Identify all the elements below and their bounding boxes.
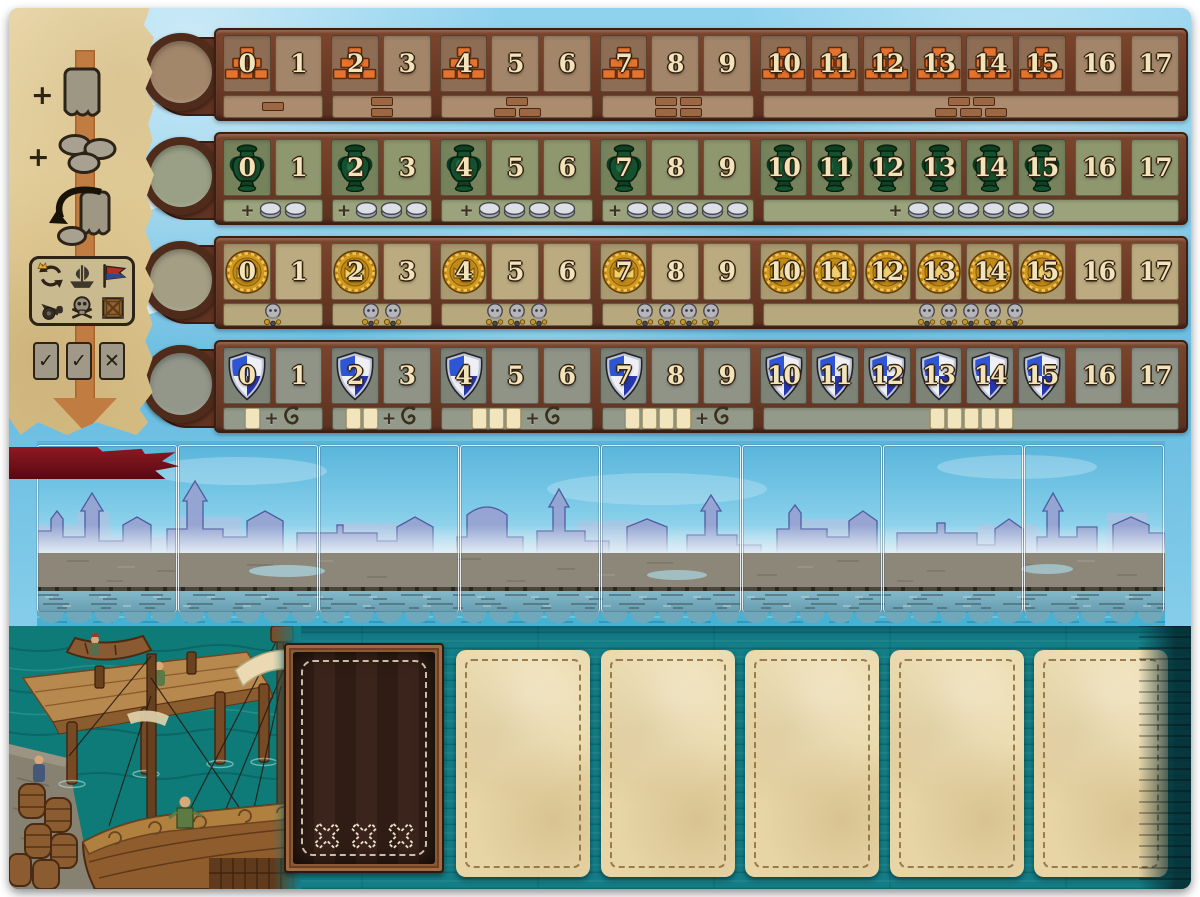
medal-track-cell-13[interactable]: 13 [915,243,963,300]
skull-loot-icon [657,303,677,326]
card-slot-dashed-outline [899,659,1015,868]
brick-reward-group [494,97,541,117]
coin-icon [355,202,378,219]
legend-return-card-for-coin [47,184,125,256]
shield-track-cell-15[interactable]: 15 [1018,347,1066,404]
discard-pile-slot[interactable] [284,643,444,873]
cell-number: 5 [491,360,539,389]
card-slot-dashed-outline [610,659,726,868]
cell-number: 13 [915,256,963,285]
amphora-track-cell-14[interactable]: 14 [966,139,1014,196]
brick-icon [655,97,677,106]
skull-loot-icon [679,303,699,326]
water-edge-shading [1139,626,1191,889]
skull-reward-group [263,303,283,326]
cell-number: 17 [1131,48,1179,77]
cell-number: 6 [543,152,591,181]
cell-number: 1 [275,152,323,181]
medal-track-cell-6[interactable]: 6 [543,243,591,300]
brick-track-cell-5[interactable]: 5 [491,35,539,92]
amphora-track-cell-3[interactable]: 3 [383,139,431,196]
cell-number: 9 [703,256,751,285]
medal-track-cell-4[interactable]: 4 [440,243,488,300]
harbor-card-slot-3[interactable] [319,445,459,612]
shield-track-cell-14[interactable]: 14 [966,347,1014,404]
amphora-track-cell-2[interactable]: 2 [331,139,379,196]
brick-track-cell-0[interactable]: 0 [223,35,271,92]
cell-number: 13 [915,360,963,389]
plus-sign: + [27,142,50,173]
shield-track-frame: 01234567891011121314151617++++ [214,340,1188,433]
coins-icon [55,132,121,182]
cell-number: 14 [966,48,1014,77]
cell-number: 7 [600,48,648,77]
harbor-ship-illustration [9,626,301,889]
brick-icon [935,108,957,117]
amphora-track-reward-5: + [763,199,1179,222]
plus-sign: + [382,409,396,429]
amphora-track-cell-0[interactable]: 0 [223,139,271,196]
amphora-track-cell-7[interactable]: 7 [600,139,648,196]
card-slot-dashed-outline [754,659,870,868]
brick-reward-group [371,97,393,117]
skull-loot-icon [961,303,981,326]
display-card-slot-1[interactable] [456,650,590,877]
amphora-track-cell-11[interactable]: 11 [811,139,859,196]
cell-number: 10 [760,152,808,181]
amphora-track: 01234567891011121314151617+++++ [214,132,1188,225]
card-reward-group [346,408,378,429]
cell-number: 13 [915,48,963,77]
medal-track-reward-2 [332,303,432,326]
harbor-card-slot-6[interactable] [742,445,882,612]
brick-track-reward-1 [223,95,323,118]
cell-number: 4 [440,152,488,181]
card-icon [625,408,640,429]
medal-track-cell-0[interactable]: 0 [223,243,271,300]
plus-sign: + [608,201,622,221]
cell-number: 10 [760,48,808,77]
brick-icon [506,97,528,106]
amphora-track-reward-2: + [332,199,432,222]
medal-track: 01234567891011121314151617 [214,236,1188,329]
shield-track-cell-9[interactable]: 9 [703,347,751,404]
shield-track-marker-circle[interactable] [142,345,220,423]
shield-track-cell-4[interactable]: 4 [440,347,488,404]
stitched-x-icon [313,822,341,850]
shield-track-cell-13[interactable]: 13 [915,347,963,404]
skull-loot-icon [263,303,283,326]
cell-number: 11 [811,48,859,77]
cell-number: 1 [275,48,323,77]
cell-number: 7 [600,152,648,181]
harbor-card-row [37,441,1165,626]
coin-icon [932,202,955,219]
medal-track-marker-circle[interactable] [142,241,220,319]
amphora-track-cell-4[interactable]: 4 [440,139,488,196]
cell-number: 11 [811,152,859,181]
cell-number: 0 [223,360,271,389]
shield-track-reward-3: + [441,407,593,430]
amphora-track-cell-9[interactable]: 9 [703,139,751,196]
brick-icon [519,108,541,117]
cell-number: 8 [651,360,699,389]
brick-track-cell-7[interactable]: 7 [600,35,648,92]
brick-track-cell-17[interactable]: 17 [1131,35,1179,92]
cell-number: 6 [543,256,591,285]
medal-track-cell-10[interactable]: 10 [760,243,808,300]
card-display-area [9,626,1191,889]
shield-track-cell-1[interactable]: 1 [275,347,323,404]
harbor-card-slot-5[interactable] [601,445,741,612]
plus-sign: + [695,409,709,429]
medal-track-cell-15[interactable]: 15 [1018,243,1066,300]
brick-track-cell-9[interactable]: 9 [703,35,751,92]
card-icon [964,408,979,429]
skull-reward-group [361,303,403,326]
discard-pile-inner [293,652,435,864]
card-icon [489,408,504,429]
medal-track-cell-1[interactable]: 1 [275,243,323,300]
skull-loot-icon [485,303,505,326]
brick-track-cell-14[interactable]: 14 [966,35,1014,92]
cell-number: 17 [1131,152,1179,181]
medal-track-frame: 01234567891011121314151617 [214,236,1188,329]
card-reward-group [930,408,1013,429]
brick-icon [973,97,995,106]
shield-track-reward-4: + [602,407,754,430]
brick-reward-group [655,97,702,117]
cell-number: 12 [863,360,911,389]
cycle-crown-icon [37,262,65,294]
coin-reward-group [259,202,307,219]
coin-icon [553,202,576,219]
brick-icon [680,97,702,106]
cell-number: 8 [651,256,699,285]
cell-number: 15 [1018,152,1066,181]
shield-track-cell-16[interactable]: 16 [1075,347,1123,404]
card-icon [998,408,1013,429]
shield-track-cell-8[interactable]: 8 [651,347,699,404]
brick-track-cell-16[interactable]: 16 [1075,35,1123,92]
skull-loot-icon [361,303,381,326]
cell-number: 2 [331,152,379,181]
card-icon [472,408,487,429]
hook-icon [713,405,731,432]
brick-icon [371,108,393,117]
medal-track-cell-14[interactable]: 14 [966,243,1014,300]
ship-icon [68,262,96,294]
stitched-x-icon [350,822,378,850]
crate-icon [99,294,127,326]
coin-icon [676,202,699,219]
cell-number: 15 [1018,48,1066,77]
medal-track-cell-12[interactable]: 12 [863,243,911,300]
brick-track: 01234567891011121314151617 [214,28,1188,121]
brick-icon [985,108,1007,117]
invalid-card: ✕ [99,342,125,380]
coin-icon [1007,202,1030,219]
coin-icon [380,202,403,219]
card-icon [363,408,378,429]
amphora-track-frame: 01234567891011121314151617+++++ [214,132,1188,225]
skull-reward-group [485,303,549,326]
medal-track-cell-11[interactable]: 11 [811,243,859,300]
cell-number: 5 [491,152,539,181]
cell-number: 16 [1075,48,1123,77]
card-icon [346,408,361,429]
card-icon [506,408,521,429]
hook-icon [400,405,418,432]
cell-number: 16 [1075,360,1123,389]
brick-track-cell-15[interactable]: 15 [1018,35,1066,92]
medal-track-cell-16[interactable]: 16 [1075,243,1123,300]
cell-number: 3 [383,152,431,181]
card-reward-group [625,408,691,429]
amphora-track-cell-6[interactable]: 6 [543,139,591,196]
brick-icon [680,108,702,117]
valid-card: ✓ [66,342,92,380]
cell-number: 16 [1075,152,1123,181]
card-slot-dashed-outline [465,659,581,868]
skull-loot-icon [983,303,1003,326]
shield-track-reward-1: + [223,407,323,430]
skull-icon [68,294,96,326]
cell-number: 14 [966,360,1014,389]
cell-number: 8 [651,152,699,181]
card-reward-group [245,408,260,429]
shield-track-cell-5[interactable]: 5 [491,347,539,404]
brick-track-cell-10[interactable]: 10 [760,35,808,92]
brick-icon [948,97,970,106]
cell-number: 10 [760,360,808,389]
cell-number: 15 [1018,360,1066,389]
amphora-track-cell-10[interactable]: 10 [760,139,808,196]
cell-number: 14 [966,152,1014,181]
coin-icon [907,202,930,219]
medal-track-cell-17[interactable]: 17 [1131,243,1179,300]
card-icon [659,408,674,429]
card-reward-group [472,408,521,429]
cell-number: 4 [440,48,488,77]
display-card-slot-4[interactable] [890,650,1024,877]
shield-track-cell-7[interactable]: 7 [600,347,648,404]
card-icon [245,408,260,429]
amphora-track-cell-8[interactable]: 8 [651,139,699,196]
cell-number: 9 [703,48,751,77]
cell-number: 16 [1075,256,1123,285]
brick-icon [262,102,284,111]
card-suit-legend [29,256,135,326]
skull-loot-icon [1005,303,1025,326]
cell-number: 9 [703,152,751,181]
harbor-card-slot-8[interactable] [1024,445,1164,612]
brick-track-cell-11[interactable]: 11 [811,35,859,92]
harbor-card-slot-2[interactable] [178,445,318,612]
brick-track-cell-13[interactable]: 13 [915,35,963,92]
shield-track-cell-2[interactable]: 2 [331,347,379,404]
coin-icon [528,202,551,219]
medal-track-reward-1 [223,303,323,326]
skull-reward-group [635,303,721,326]
cell-number: 5 [491,256,539,285]
shield-track-reward-5 [763,407,1179,430]
cell-number: 6 [543,360,591,389]
brick-track-marker-circle[interactable] [142,33,220,111]
display-card-slot-2[interactable] [601,650,735,877]
coin-icon [284,202,307,219]
card-icon [59,66,105,124]
skull-loot-icon [939,303,959,326]
amphora-track-reward-1: + [223,199,323,222]
medal-track-cell-2[interactable]: 2 [331,243,379,300]
brick-track-cell-3[interactable]: 3 [383,35,431,92]
shield-track-reward-2: + [332,407,432,430]
cell-number: 15 [1018,256,1066,285]
brick-track-cell-6[interactable]: 6 [543,35,591,92]
brick-icon [494,108,516,117]
cell-number: 11 [811,360,859,389]
amphora-track-cell-17[interactable]: 17 [1131,139,1179,196]
card-icon [930,408,945,429]
flag-icon [99,262,127,294]
legend-gain-card: + [31,66,105,124]
brick-icon [371,97,393,106]
coin-reward-group [355,202,428,219]
harbor-card-slot-7[interactable] [883,445,1023,612]
medal-track-cell-9[interactable]: 9 [703,243,751,300]
display-card-slot-3[interactable] [745,650,879,877]
skull-loot-icon [701,303,721,326]
cell-number: 2 [331,360,379,389]
cell-number: 3 [383,48,431,77]
amphora-track-cell-5[interactable]: 5 [491,139,539,196]
skull-loot-icon [635,303,655,326]
brick-track-frame: 01234567891011121314151617 [214,28,1188,121]
check-icon: ✓ [71,350,87,372]
cell-number: 9 [703,360,751,389]
cell-number: 4 [440,256,488,285]
shield-track-cell-17[interactable]: 17 [1131,347,1179,404]
coin-reward-group [478,202,576,219]
cannon-icon [37,294,65,326]
cell-number: 17 [1131,360,1179,389]
coin-reward-group [907,202,1055,219]
cell-number: 6 [543,48,591,77]
amphora-track-cell-15[interactable]: 15 [1018,139,1066,196]
shield-track-cell-10[interactable]: 10 [760,347,808,404]
cell-number: 12 [863,48,911,77]
coin-icon [957,202,980,219]
brick-track-cell-2[interactable]: 2 [331,35,379,92]
harbor-card-slot-4[interactable] [460,445,600,612]
shield-track-cell-3[interactable]: 3 [383,347,431,404]
cell-number: 10 [760,256,808,285]
brick-track-cell-12[interactable]: 12 [863,35,911,92]
plus-sign: + [240,201,254,221]
cell-number: 12 [863,256,911,285]
medal-track-cell-7[interactable]: 7 [600,243,648,300]
medal-track-cell-3[interactable]: 3 [383,243,431,300]
shield-track-cell-12[interactable]: 12 [863,347,911,404]
skull-loot-icon [383,303,403,326]
coin-icon [478,202,501,219]
amphora-track-reward-3: + [441,199,593,222]
stitched-x-row [293,822,435,850]
plus-sign: + [337,201,351,221]
coin-icon [726,202,749,219]
coin-reward-group [626,202,749,219]
coin-icon [405,202,428,219]
cell-number: 12 [863,152,911,181]
amphora-track-cell-16[interactable]: 16 [1075,139,1123,196]
coin-icon [651,202,674,219]
cell-number: 7 [600,360,648,389]
shield-track-cell-11[interactable]: 11 [811,347,859,404]
game-board: + + ✓ ✓ ✕ 012345678910111213141516170123… [9,8,1191,889]
brick-track-cell-8[interactable]: 8 [651,35,699,92]
plus-sign: + [264,409,278,429]
brick-reward-group [262,102,284,111]
card-icon [676,408,691,429]
valid-card: ✓ [33,342,59,380]
brick-track-reward-4 [602,95,754,118]
coin-icon [982,202,1005,219]
card-validity-legend: ✓ ✓ ✕ [33,342,125,380]
stitched-x-icon [387,822,415,850]
brick-track-cell-1[interactable]: 1 [275,35,323,92]
cell-number: 5 [491,48,539,77]
medal-track-reward-3 [441,303,593,326]
card-icon [981,408,996,429]
turn-sequence-legend: + + ✓ ✓ ✕ [9,8,154,435]
brick-icon [960,108,982,117]
cell-number: 17 [1131,256,1179,285]
medal-track-reward-4 [602,303,754,326]
brick-track-cell-4[interactable]: 4 [440,35,488,92]
cell-number: 3 [383,360,431,389]
amphora-track-marker-circle[interactable] [142,137,220,215]
cell-number: 11 [811,256,859,285]
brick-track-reward-2 [332,95,432,118]
shield-track-cell-0[interactable]: 0 [223,347,271,404]
amphora-track-cell-12[interactable]: 12 [863,139,911,196]
brick-track-reward-5 [763,95,1179,118]
amphora-track-cell-13[interactable]: 13 [915,139,963,196]
coin-icon [259,202,282,219]
brick-reward-group [935,97,1007,117]
amphora-track-cell-1[interactable]: 1 [275,139,323,196]
cell-number: 3 [383,256,431,285]
cell-number: 13 [915,152,963,181]
cell-number: 2 [331,256,379,285]
coin-icon [701,202,724,219]
quay-wall-scallop-edge [37,612,1165,627]
card-icon [947,408,962,429]
coin-icon [1032,202,1055,219]
cell-number: 2 [331,48,379,77]
medal-track-reward-5 [763,303,1179,326]
cell-number: 0 [223,152,271,181]
shield-track-cell-6[interactable]: 6 [543,347,591,404]
cell-number: 7 [600,256,648,285]
medal-track-cell-8[interactable]: 8 [651,243,699,300]
cell-number: 8 [651,48,699,77]
return-card-coin-icon [47,184,125,256]
medal-track-cell-5[interactable]: 5 [491,243,539,300]
plus-sign: + [31,80,54,111]
coin-icon [626,202,649,219]
